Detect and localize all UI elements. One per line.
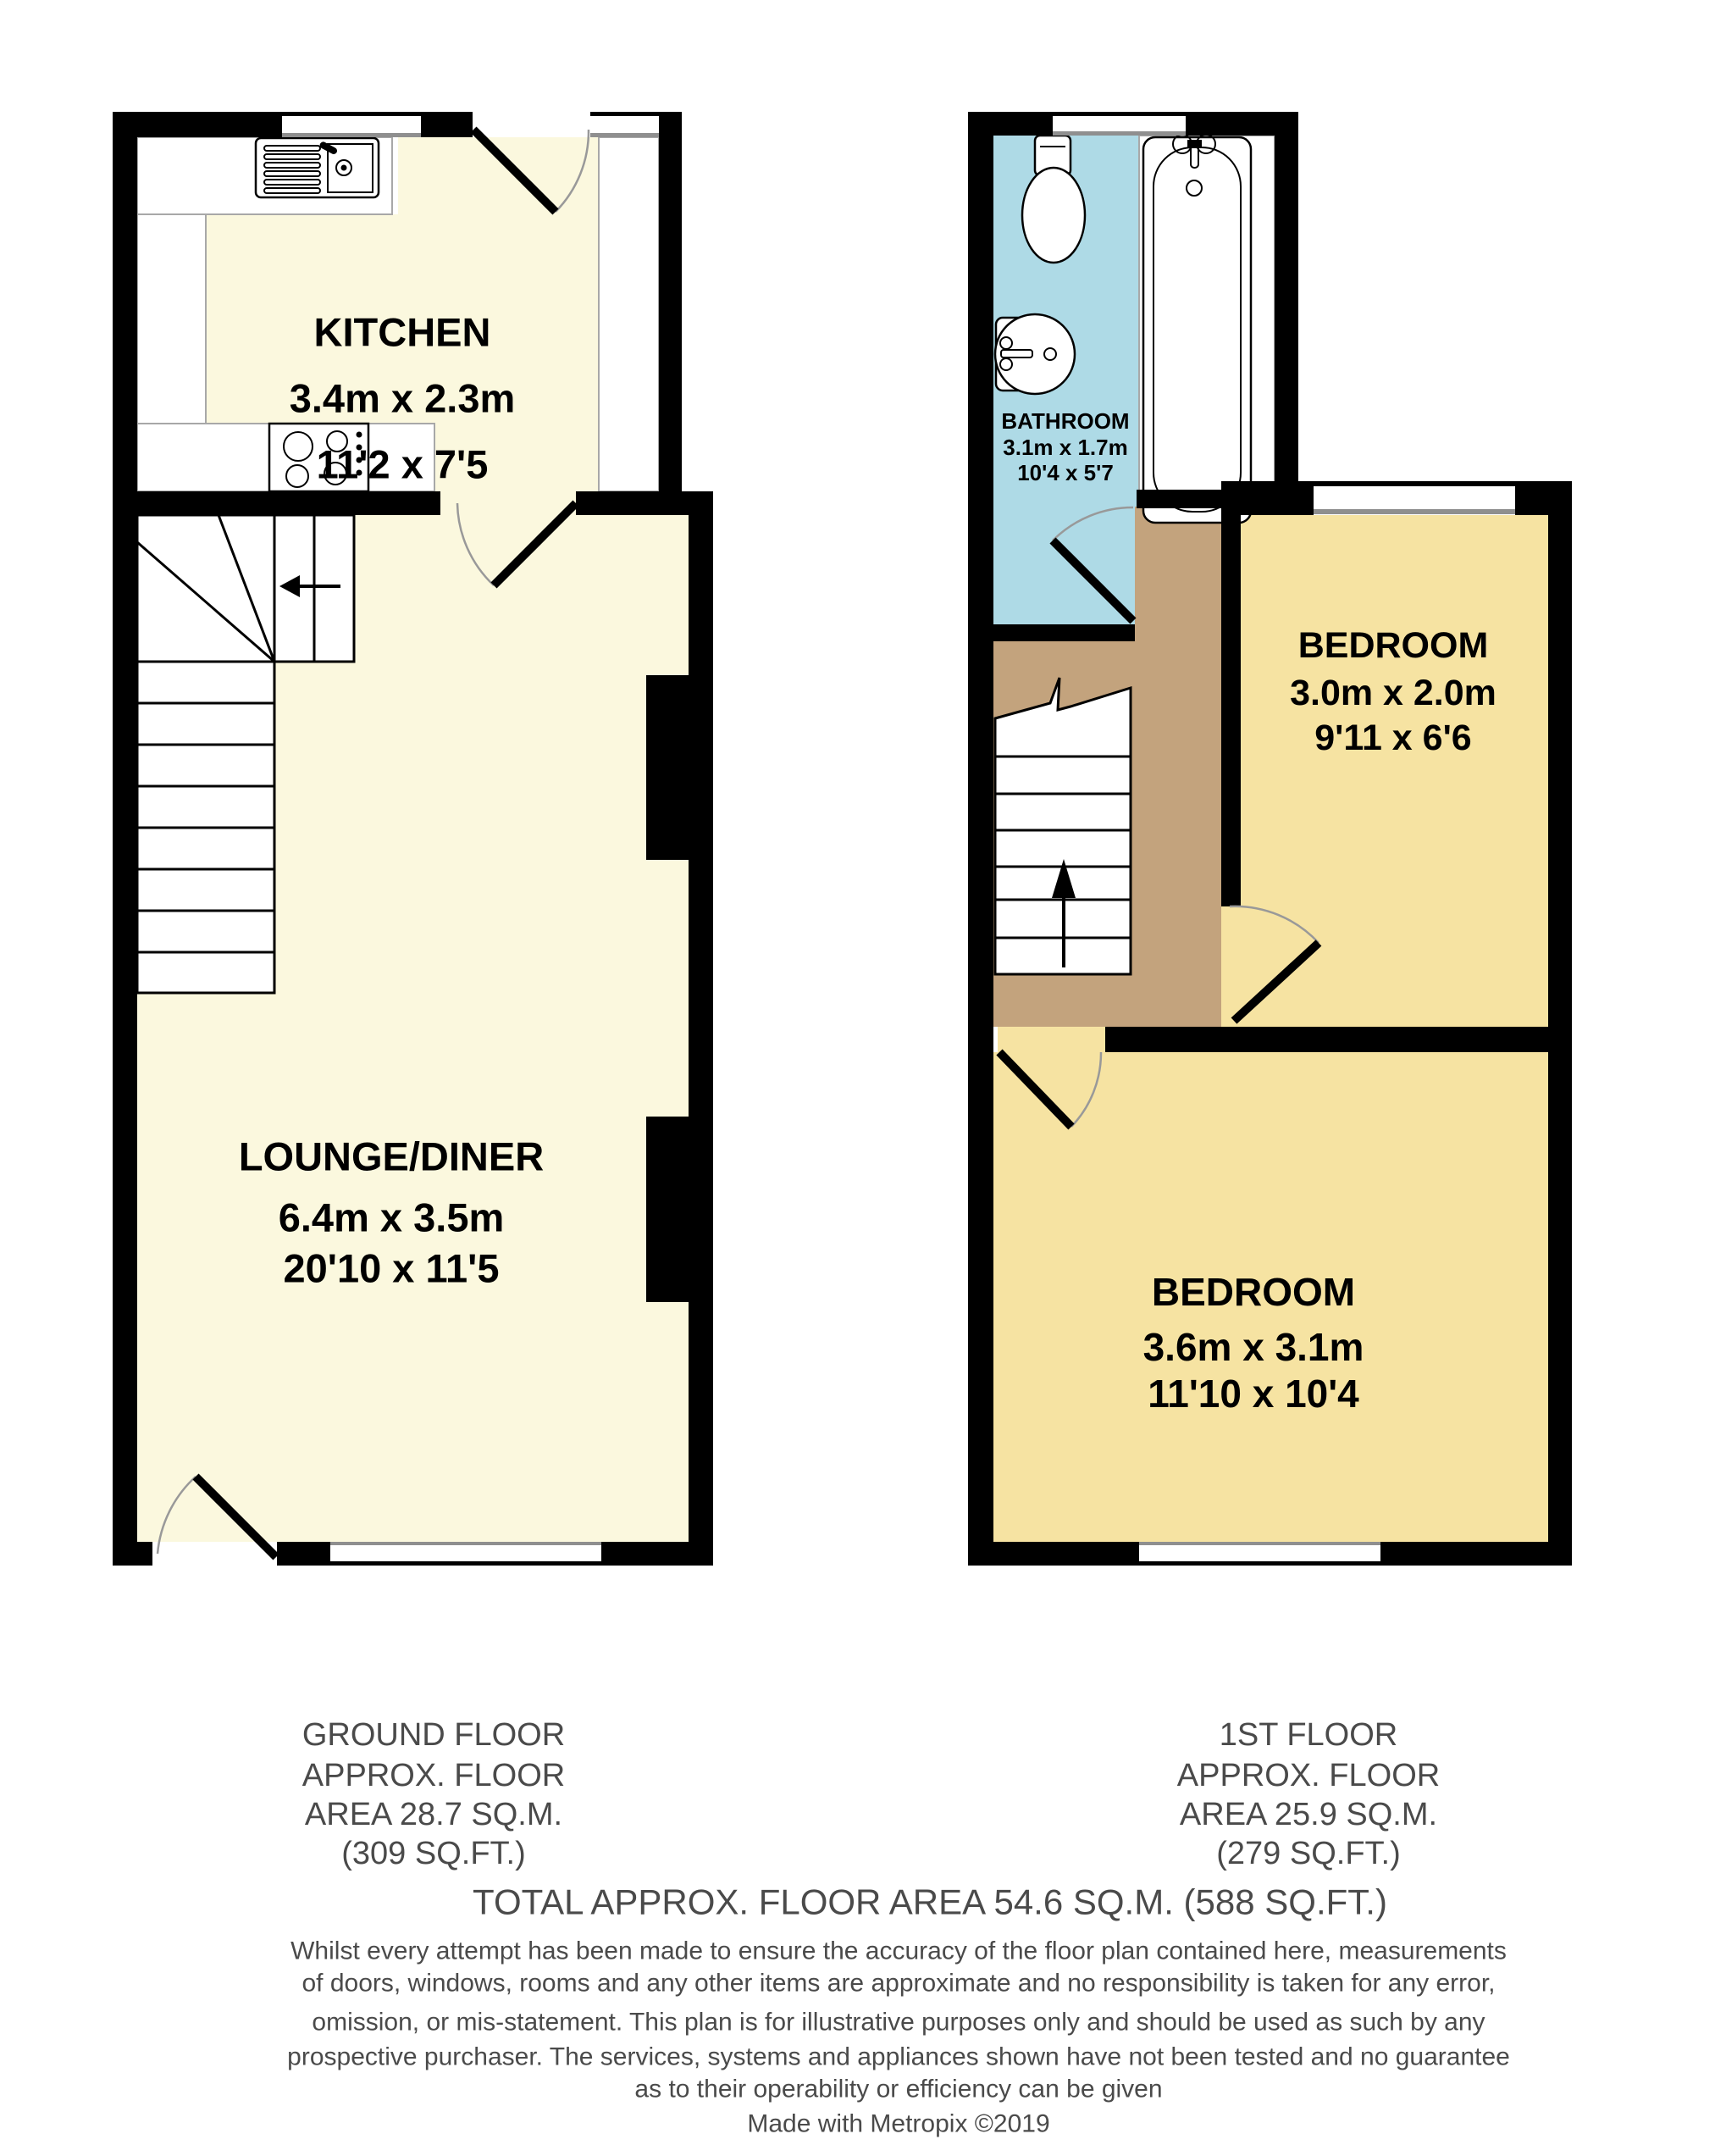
- bathroom-size-metric: 3.1m x 1.7m: [1003, 435, 1127, 460]
- front-door-opening: [152, 1542, 277, 1566]
- ground-floor-title: GROUND FLOOR: [302, 1717, 565, 1753]
- bedroom2-door-gap: [998, 1027, 1105, 1052]
- kitchen-size-metric: 3.4m x 2.3m: [290, 376, 516, 421]
- kitchen-counter-right: [599, 137, 659, 491]
- floorplan-drawing: KITCHEN 3.4m x 2.3m 11'2 x 7'5 LOUNGE/DI…: [0, 0, 1715, 2156]
- kitchen-entry-opening: [473, 112, 590, 137]
- kitchen-window: [282, 112, 421, 137]
- landing-floor-upper: [1135, 507, 1221, 641]
- bathroom-window: [1053, 112, 1186, 136]
- first-floor-title: 1ST FLOOR: [1220, 1717, 1397, 1753]
- bathroom-size-imperial: 10'4 x 5'7: [1017, 460, 1114, 485]
- ground-floor-approx: APPROX. FLOOR: [302, 1758, 565, 1793]
- footer: GROUND FLOOR APPROX. FLOOR AREA 28.7 SQ.…: [287, 1717, 1510, 2138]
- lounge-size-imperial: 20'10 x 11'5: [284, 1246, 500, 1291]
- kitchen-size-imperial: 11'2 x 7'5: [317, 442, 489, 487]
- chimney-breast-upper: [646, 675, 689, 860]
- disclaimer: Whilst every attempt has been made to en…: [287, 1937, 1510, 2103]
- first-floor-area-block: 1ST FLOOR APPROX. FLOOR AREA 25.9 SQ.M. …: [1177, 1717, 1440, 1871]
- bedroom1-size-imperial: 9'11 x 6'6: [1314, 718, 1471, 758]
- first-floor-plan: BATHROOM 3.1m x 1.7m 10'4 x 5'7 BEDROOM …: [968, 112, 1572, 1566]
- total-floor-area: TOTAL APPROX. FLOOR AREA 54.6 SQ.M. (588…: [473, 1882, 1387, 1922]
- bedroom1-label: BEDROOM: [1298, 625, 1489, 666]
- bedroom2-size-metric: 3.6m x 3.1m: [1143, 1325, 1364, 1369]
- floorplan-page: KITCHEN 3.4m x 2.3m 11'2 x 7'5 LOUNGE/DI…: [0, 0, 1715, 2156]
- bedroom2-label: BEDROOM: [1152, 1270, 1355, 1314]
- first-floor-area-sqft: (279 SQ.FT.): [1216, 1836, 1401, 1871]
- bedroom1-size-metric: 3.0m x 2.0m: [1290, 673, 1496, 713]
- lounge-size-metric: 6.4m x 3.5m: [279, 1195, 505, 1240]
- ground-floor-area-block: GROUND FLOOR APPROX. FLOOR AREA 28.7 SQ.…: [302, 1717, 565, 1871]
- disclaimer-line: as to their operability or efficiency ca…: [634, 2076, 1162, 2103]
- first-floor-approx: APPROX. FLOOR: [1177, 1758, 1440, 1793]
- first-floor-staircase: [995, 678, 1131, 974]
- disclaimer-line: omission, or mis-statement. This plan is…: [312, 2009, 1485, 2037]
- lounge-window: [330, 1542, 601, 1566]
- bedroom2-size-imperial: 11'10 x 10'4: [1148, 1372, 1359, 1416]
- wash-basin-icon: [995, 314, 1075, 394]
- chimney-breast-lower: [646, 1117, 689, 1302]
- first-floor-area-sqm: AREA 25.9 SQ.M.: [1180, 1797, 1437, 1832]
- sink-with-drainer-icon: [256, 138, 379, 197]
- disclaimer-line: of doors, windows, rooms and any other i…: [302, 1970, 1495, 1998]
- metropix-credit: Made with Metropix ©2019: [747, 2110, 1049, 2138]
- bathtub-icon: [1143, 135, 1251, 523]
- bedroom1-floor: [1241, 515, 1548, 1027]
- kitchen-counter-left: [137, 214, 206, 424]
- disclaimer-line: Whilst every attempt has been made to en…: [290, 1937, 1507, 1965]
- kitchen-label: KITCHEN: [314, 310, 491, 355]
- ground-floor-area-sqft: (309 SQ.FT.): [341, 1836, 526, 1871]
- bedroom1-door-gap: [1221, 906, 1241, 1027]
- ground-floor-plan: KITCHEN 3.4m x 2.3m 11'2 x 7'5 LOUNGE/DI…: [113, 112, 713, 1566]
- disclaimer-line: prospective purchaser. The services, sys…: [287, 2043, 1510, 2071]
- kitchen-lounge-door-gap: [440, 491, 576, 515]
- lounge-label: LOUNGE/DINER: [239, 1134, 544, 1179]
- bathroom-label: BATHROOM: [1001, 408, 1129, 434]
- bedroom1-window: [1314, 481, 1515, 515]
- ground-floor-area-sqm: AREA 28.7 SQ.M.: [305, 1797, 562, 1832]
- bedroom2-window: [1139, 1542, 1380, 1566]
- hall-window: [590, 112, 659, 137]
